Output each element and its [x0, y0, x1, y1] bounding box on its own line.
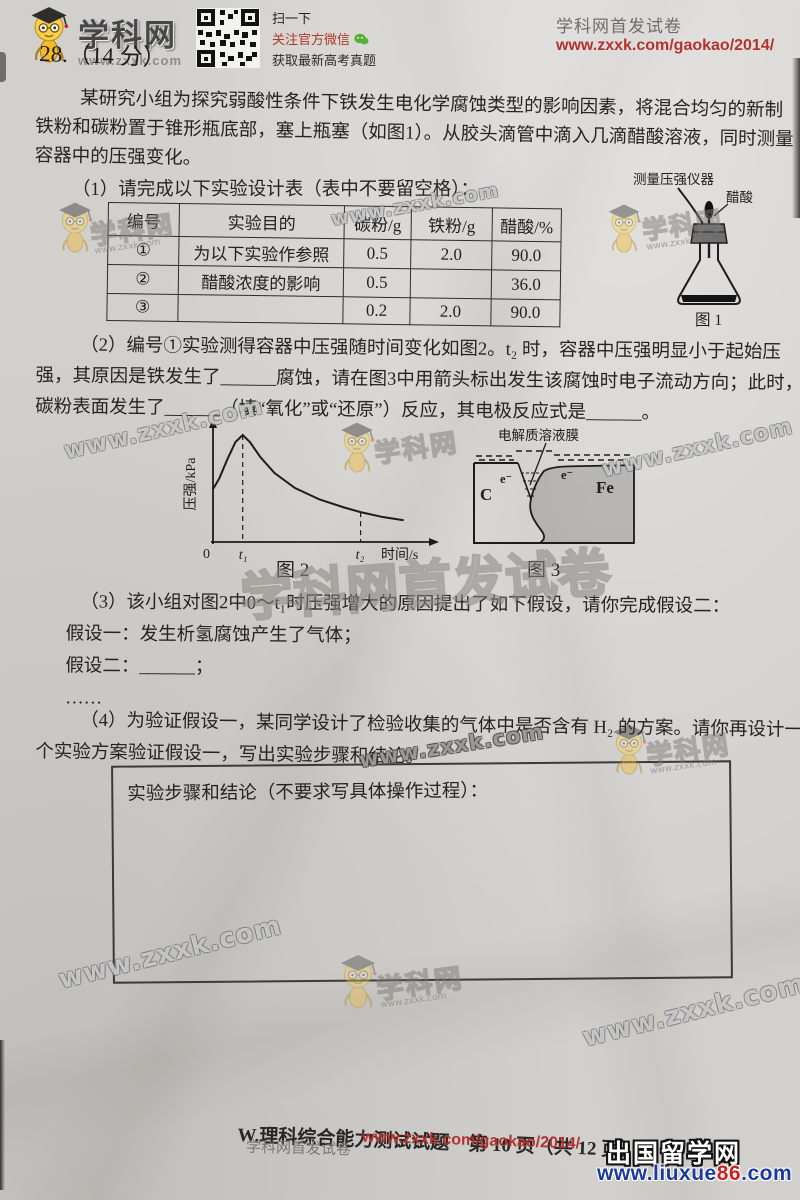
- scanned-exam-page: 学科网 www.zxxk.com 28.（14 分） 扫一下 关注官方微信: [0, 0, 800, 1200]
- qr-caption-gaokao: 获取最新高考真题: [272, 50, 376, 71]
- figure1-instrument-label: 测量压强仪器: [633, 172, 714, 187]
- header-right-url: www.zxxk.com/gaokao/2014/: [556, 37, 774, 55]
- cell: ②: [107, 265, 178, 295]
- table-row: ③ 0.2 2.0 90.0: [107, 293, 560, 326]
- cell: 0.2: [343, 297, 410, 325]
- part3-paragraph: （3）该小组对图2中0～t₁时压强增大的原因提出了如下假设，请你完成假设二： 假…: [35, 586, 730, 719]
- cell: ③: [107, 293, 178, 321]
- part3-line-1: （3）该小组对图2中0～t₁时压强增大的原因提出了如下假设，请你完成假设二：: [36, 586, 730, 623]
- header-right-title: 学科网首发试卷: [556, 12, 774, 37]
- liuxue-site-url: www.liuxue86.com: [597, 1162, 792, 1186]
- watermark-mascot: [606, 200, 642, 254]
- watermark-mascot: [338, 950, 378, 1010]
- cell-blank: [178, 294, 343, 323]
- cell-blank: [410, 269, 491, 299]
- footer-brand-gray: 学科网首发试卷: [246, 1136, 352, 1160]
- y-axis-label: 压强/kPa: [184, 457, 199, 511]
- col-header-purpose: 实验目的: [179, 203, 344, 238]
- header-right: 学科网首发试卷 www.zxxk.com/gaokao/2014/: [556, 12, 774, 55]
- wechat-icon: [354, 33, 369, 46]
- qr-caption-wechat: 关注官方微信: [272, 29, 376, 50]
- figure3-caption: 图 3: [527, 556, 560, 585]
- cell: 0.5: [343, 268, 410, 298]
- figure3-diagram: 电解质溶液膜 e⁻ e⁻ C Fe: [466, 425, 641, 560]
- cell: 2.0: [411, 240, 492, 270]
- watermark-mascot: [610, 720, 648, 776]
- figure1-acid-label: 醋酸: [726, 190, 754, 205]
- cell: 为以下实验作参照: [179, 236, 344, 267]
- x-axis-label: 时间/s: [381, 547, 418, 562]
- scan-mark-topleft: [0, 52, 6, 82]
- qr-captions: 扫一下 关注官方微信 获取最新高考真题: [272, 8, 376, 71]
- electrolyte-film-label: 电解质溶液膜: [498, 428, 579, 443]
- cell: 90.0: [491, 299, 560, 327]
- x-axis-arrow: [429, 538, 439, 546]
- carbon-label: C: [480, 485, 492, 504]
- figure2-caption: 图 2: [276, 556, 309, 585]
- watermark-mascot: [338, 418, 376, 474]
- electron-label-left: e⁻: [500, 472, 512, 486]
- watermark-url: www.zxxk.com: [580, 969, 800, 1053]
- hypothesis-2-blank: 假设二：______；: [65, 650, 729, 687]
- cell: 2.0: [410, 298, 491, 326]
- liuxue-url-prefix: www.liuxue: [597, 1162, 717, 1185]
- qr-code: [196, 8, 260, 68]
- cell: 0.5: [344, 239, 411, 269]
- cell: 90.0: [492, 241, 561, 271]
- liuxue-url-suffix: .com: [741, 1162, 792, 1185]
- origin-label: 0: [203, 547, 210, 562]
- electron-label-right: e⁻: [561, 468, 573, 482]
- scan-edge-left: [0, 1040, 5, 1190]
- cell: 36.0: [491, 270, 560, 300]
- figure1-caption: 图 1: [695, 312, 722, 329]
- qr-caption-scan: 扫一下: [272, 8, 376, 29]
- hypothesis-1: 假设一：发生析氢腐蚀产生了气体；: [66, 618, 730, 655]
- cell: 醋酸浓度的影响: [178, 265, 343, 296]
- col-header-acid: 醋酸/%: [492, 208, 561, 242]
- question-number: 28.（14 分）: [39, 34, 167, 72]
- t1-tick-label: t₁: [239, 548, 248, 562]
- liuxue-url-num: 86: [717, 1162, 741, 1185]
- flask-liquid: [681, 295, 737, 302]
- t2-tick-label: t₂: [356, 548, 365, 562]
